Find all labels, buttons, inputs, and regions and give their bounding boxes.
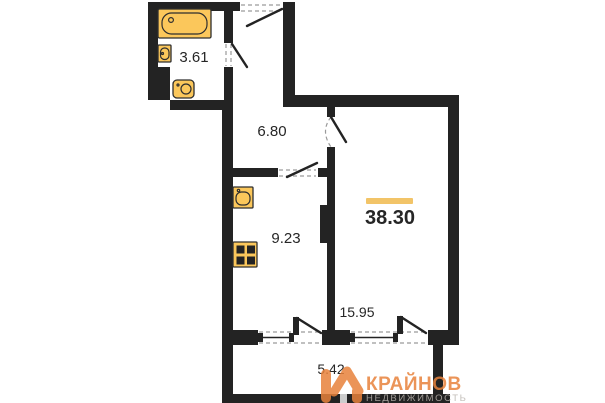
washing-machine-icon bbox=[173, 80, 194, 98]
living-area-label: 15.95 bbox=[339, 304, 374, 320]
brand-name: КРАЙНОВ bbox=[366, 373, 462, 395]
wall-hallway-right bbox=[283, 2, 295, 107]
wall-divider bbox=[327, 147, 335, 335]
floor-plan-drawing: 3.61 6.80 9.23 38.30 15.95 5.42 КРАЙНОВ … bbox=[0, 0, 605, 403]
wall-bathroom-right-upper bbox=[224, 2, 233, 43]
hallway-area-label: 6.80 bbox=[257, 123, 286, 140]
kitchen-sink-icon bbox=[233, 187, 253, 208]
wall-divider-top-stub bbox=[327, 107, 335, 117]
stove-icon bbox=[233, 242, 257, 267]
kitchen-door-icon bbox=[279, 163, 317, 177]
wall-divider-pilaster bbox=[320, 205, 327, 243]
wall-kitchen-top bbox=[233, 168, 278, 177]
brand-logo-icon bbox=[321, 369, 362, 403]
wall-sink-icon bbox=[158, 45, 171, 62]
bathroom-door-icon bbox=[226, 44, 247, 67]
kitchen-balcony-window-icon bbox=[258, 317, 321, 343]
brand-subtitle: НЕДВИЖИМОСТЬ bbox=[366, 393, 467, 403]
wall-living-top bbox=[283, 95, 459, 107]
wall-bottom-right-block bbox=[428, 330, 459, 345]
total-area-label: 38.30 bbox=[365, 207, 415, 229]
entrance-door-icon bbox=[241, 5, 282, 26]
total-area-accent-line bbox=[366, 198, 413, 204]
wall-living-right bbox=[448, 95, 459, 335]
kitchen-area-label: 9.23 bbox=[271, 230, 300, 247]
wall-bottom-left-block bbox=[222, 330, 258, 345]
wall-kitchen-left bbox=[222, 100, 233, 399]
wall-bathroom-left bbox=[148, 2, 158, 100]
bathtub-icon bbox=[158, 9, 211, 38]
living-balcony-window-icon bbox=[350, 316, 427, 343]
floor-plan-page: 3.61 6.80 9.23 38.30 15.95 5.42 КРАЙНОВ … bbox=[0, 0, 605, 403]
bathroom-area-label: 3.61 bbox=[179, 49, 208, 66]
brand-logo: КРАЙНОВ НЕДВИЖИМОСТЬ bbox=[321, 369, 467, 403]
fixtures bbox=[158, 9, 257, 267]
wall-bathroom-right-lower bbox=[224, 67, 233, 100]
wall-bottom-mid-block bbox=[322, 330, 350, 345]
wall-bathroom-stub bbox=[158, 67, 170, 100]
living-room-door-icon bbox=[326, 117, 347, 147]
